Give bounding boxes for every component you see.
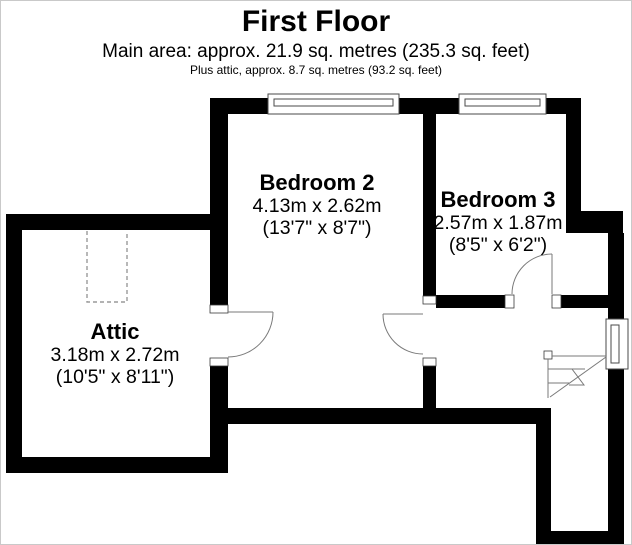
wall-attic-bedroom2-upper <box>210 98 228 305</box>
wall-bedroom2-bedroom3-lower <box>423 366 436 408</box>
wall-bedroom3-bottom-right <box>561 295 608 308</box>
window-sash <box>274 99 393 106</box>
wall-attic-left <box>6 214 22 473</box>
door-bedroom2-landing <box>383 314 423 354</box>
door-attic <box>228 312 273 357</box>
wall-attic-bottom <box>6 457 228 473</box>
bedroom2-imperial: (13'7" x 8'7") <box>253 217 382 239</box>
bedroom2-metric: 4.13m x 2.62m <box>253 195 382 217</box>
door-jamb <box>552 295 561 308</box>
door-swing-arc <box>383 314 423 354</box>
wall-right-step <box>566 211 623 233</box>
door-jamb <box>423 296 436 304</box>
bedroom3-name: Bedroom 3 <box>434 188 563 212</box>
bedroom3-metric: 2.57m x 1.87m <box>434 212 563 234</box>
door-swing-arc <box>512 254 552 294</box>
stair-break-mark <box>569 369 585 385</box>
window-landing-right <box>606 319 628 369</box>
wall-bedroom3-bottom-left <box>436 295 505 308</box>
attic-name: Attic <box>51 320 180 344</box>
wall-stairwell-left <box>536 408 551 545</box>
stair-newel-post <box>544 351 552 359</box>
window-sash <box>611 325 619 363</box>
wall-attic-top <box>6 214 228 230</box>
window-bedroom2 <box>268 94 399 114</box>
bedroom3-imperial: (8'5" x 6'2") <box>434 234 563 256</box>
window-sash <box>465 99 540 106</box>
staircase-symbol <box>544 351 606 398</box>
door-jamb <box>423 358 436 366</box>
wall-outer-right-upper <box>608 233 624 319</box>
room-label-attic: Attic 3.18m x 2.72m (10'5" x 8'11") <box>51 320 180 388</box>
floor-plan-page: First Floor Main area: approx. 21.9 sq. … <box>0 0 632 545</box>
window-bedroom3 <box>459 94 546 114</box>
floor-plan-drawing <box>1 1 632 545</box>
door-jamb <box>505 295 514 308</box>
door-bedroom3 <box>512 254 552 294</box>
room-label-bedroom3: Bedroom 3 2.57m x 1.87m (8'5" x 6'2") <box>434 188 563 256</box>
wall-main-bottom <box>210 408 551 424</box>
door-swing-arc <box>228 312 273 357</box>
attic-imperial: (10'5" x 8'11") <box>51 366 180 388</box>
wall-bedroom3-right <box>566 98 581 219</box>
chimney-dashed-outline <box>87 231 127 302</box>
bedroom2-name: Bedroom 2 <box>253 171 382 195</box>
wall-outer-right-lower <box>608 369 624 545</box>
door-jamb <box>210 305 228 313</box>
door-jamb <box>210 358 228 366</box>
attic-metric: 3.18m x 2.72m <box>51 344 180 366</box>
room-label-bedroom2: Bedroom 2 4.13m x 2.62m (13'7" x 8'7") <box>253 171 382 239</box>
